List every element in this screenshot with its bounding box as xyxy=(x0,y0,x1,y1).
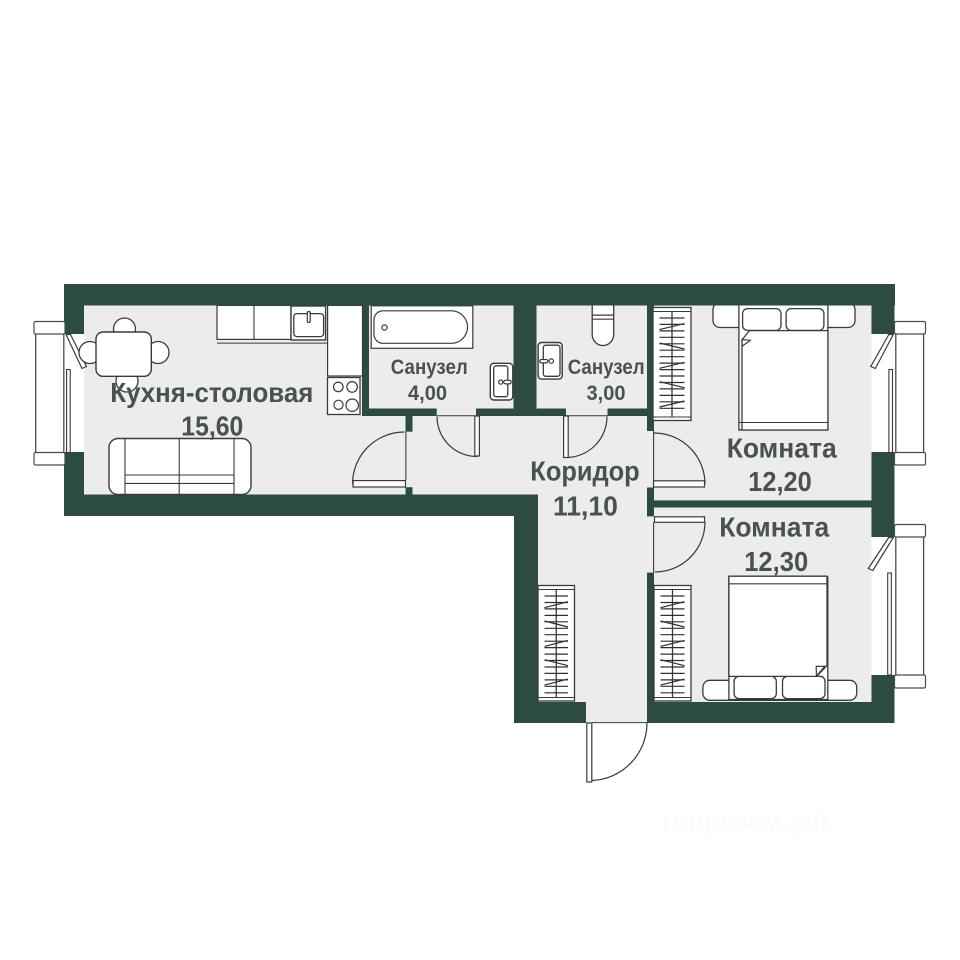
svg-text:Санузел: Санузел xyxy=(568,355,645,379)
svg-text:15,60: 15,60 xyxy=(181,410,243,441)
svg-text:11,10: 11,10 xyxy=(553,491,618,522)
svg-text:Кухня-столовая: Кухня-столовая xyxy=(110,377,313,408)
svg-text:Комната: Комната xyxy=(719,512,830,543)
svg-text:4,00: 4,00 xyxy=(408,381,447,405)
svg-text:Санузел: Санузел xyxy=(391,355,468,379)
svg-text:12,30: 12,30 xyxy=(744,546,808,577)
svg-text:гипрозем.рф: гипрозем.рф xyxy=(662,806,828,836)
svg-text:Коридор: Коридор xyxy=(530,456,639,487)
svg-text:12,20: 12,20 xyxy=(748,466,811,497)
svg-text:3,00: 3,00 xyxy=(587,381,626,405)
svg-text:Комната: Комната xyxy=(727,433,838,464)
